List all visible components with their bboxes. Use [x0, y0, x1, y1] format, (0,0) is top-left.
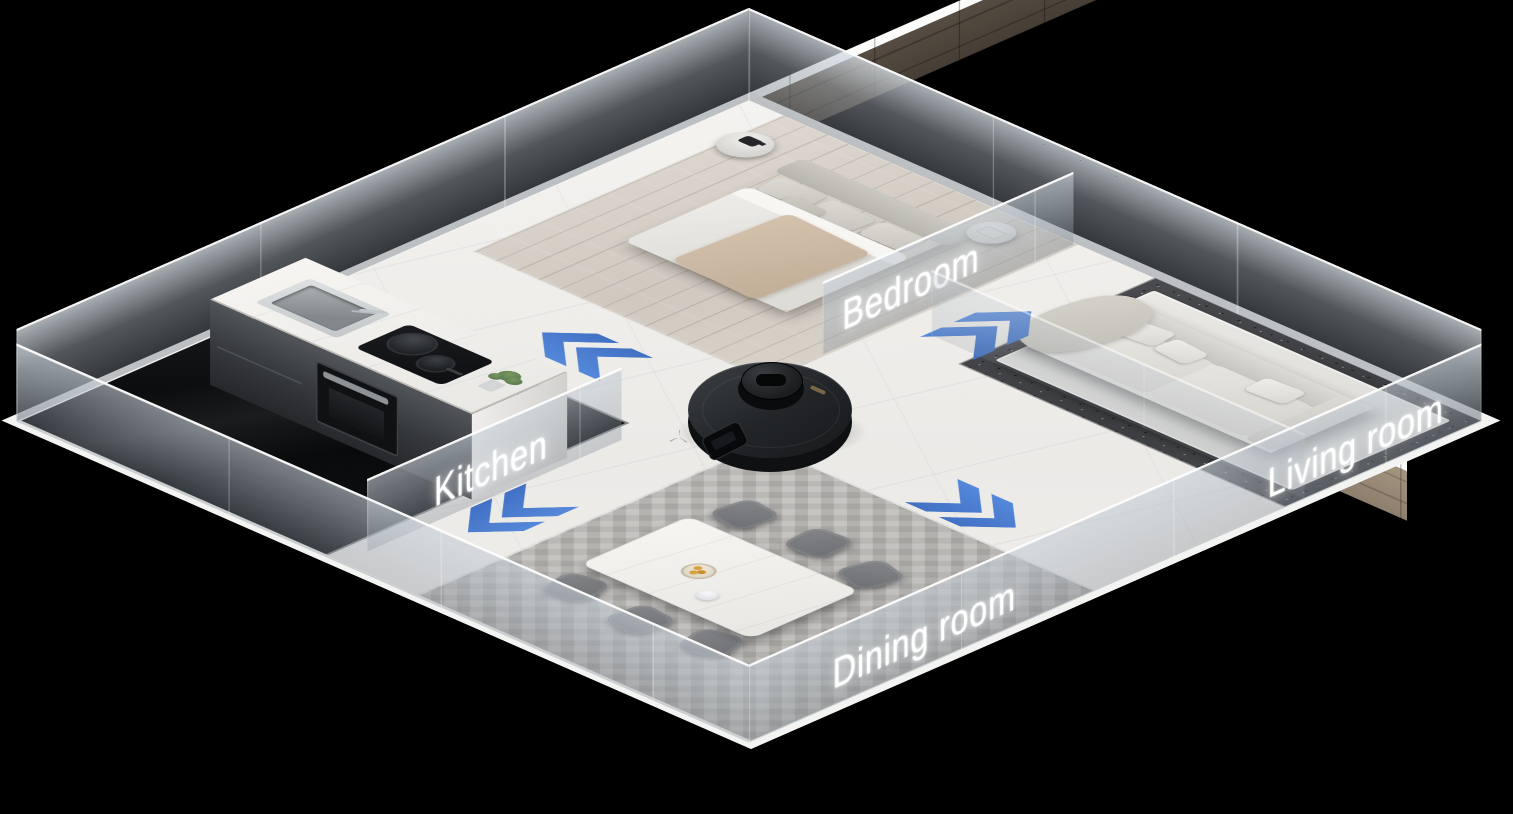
pillow	[805, 199, 877, 232]
glass-carafe	[692, 589, 723, 603]
sofa-pillow	[1110, 319, 1178, 347]
nightstand	[704, 127, 786, 163]
chevron-icon	[938, 494, 1042, 540]
dining-chair	[779, 526, 856, 560]
sofa-pillow	[1243, 377, 1307, 404]
cooking-pot	[380, 330, 445, 359]
lidar-window	[756, 374, 786, 386]
dining-chair	[833, 558, 909, 591]
chevron-icon	[904, 479, 1008, 525]
dining-chair	[706, 498, 783, 532]
sofa-pillow	[1152, 339, 1210, 365]
pan-handle	[445, 367, 464, 375]
robot-side-brush	[668, 430, 690, 444]
chevron-arrows-toward-dining-room	[904, 479, 1042, 539]
cabinet-seam	[217, 346, 302, 385]
plant-pot	[477, 379, 507, 392]
camera-window	[711, 431, 737, 451]
fruit	[692, 565, 705, 571]
bed-sheet	[731, 186, 911, 265]
floor-plan-illustration: Bedroom Kitchen Living room Dining room	[0, 0, 1513, 814]
pillow	[771, 196, 829, 221]
pillow	[755, 177, 830, 209]
fruit	[695, 569, 708, 575]
fruit	[687, 570, 700, 576]
table-lamp	[737, 135, 764, 147]
robot-vacuum-icon	[660, 340, 890, 480]
fruit-bowl	[673, 560, 724, 582]
